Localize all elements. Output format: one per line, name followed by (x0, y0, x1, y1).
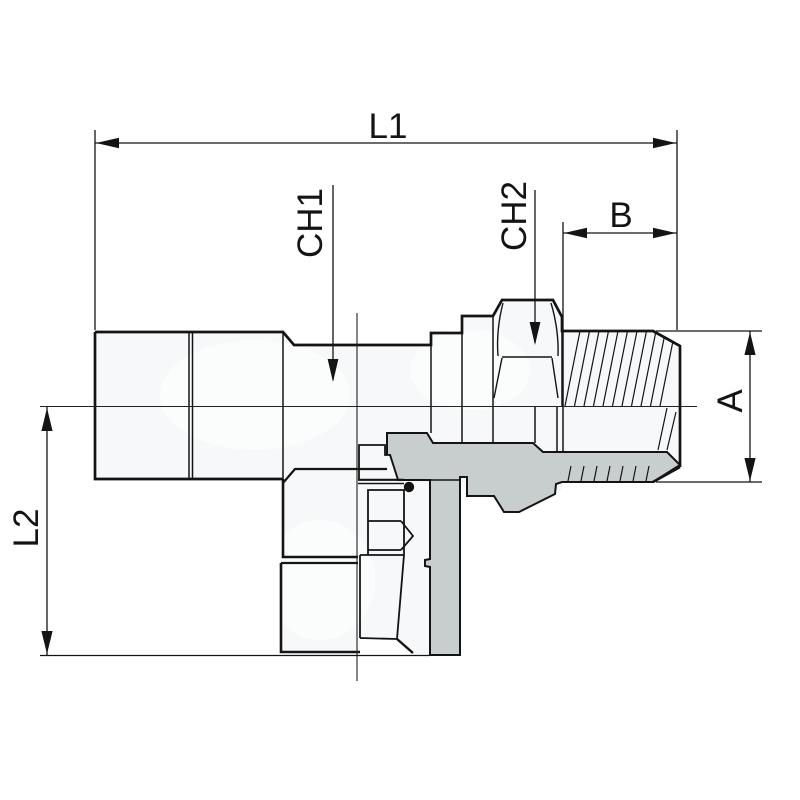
dimension-label-b: B (609, 196, 632, 235)
dimension-label-l1: L1 (369, 107, 408, 146)
drawing-canvas: L1 B CH1 CH2 A L2 (0, 0, 800, 800)
dim-b (563, 222, 677, 330)
dimension-label-l2: L2 (7, 509, 46, 548)
dimension-label-a: A (711, 389, 750, 413)
dimension-label-ch1: CH1 (291, 188, 330, 258)
dim-l1 (95, 130, 677, 330)
dimension-label-ch2: CH2 (495, 181, 534, 251)
o-ring-dot (404, 482, 414, 492)
technical-drawing: L1 B CH1 CH2 A L2 (0, 0, 800, 800)
